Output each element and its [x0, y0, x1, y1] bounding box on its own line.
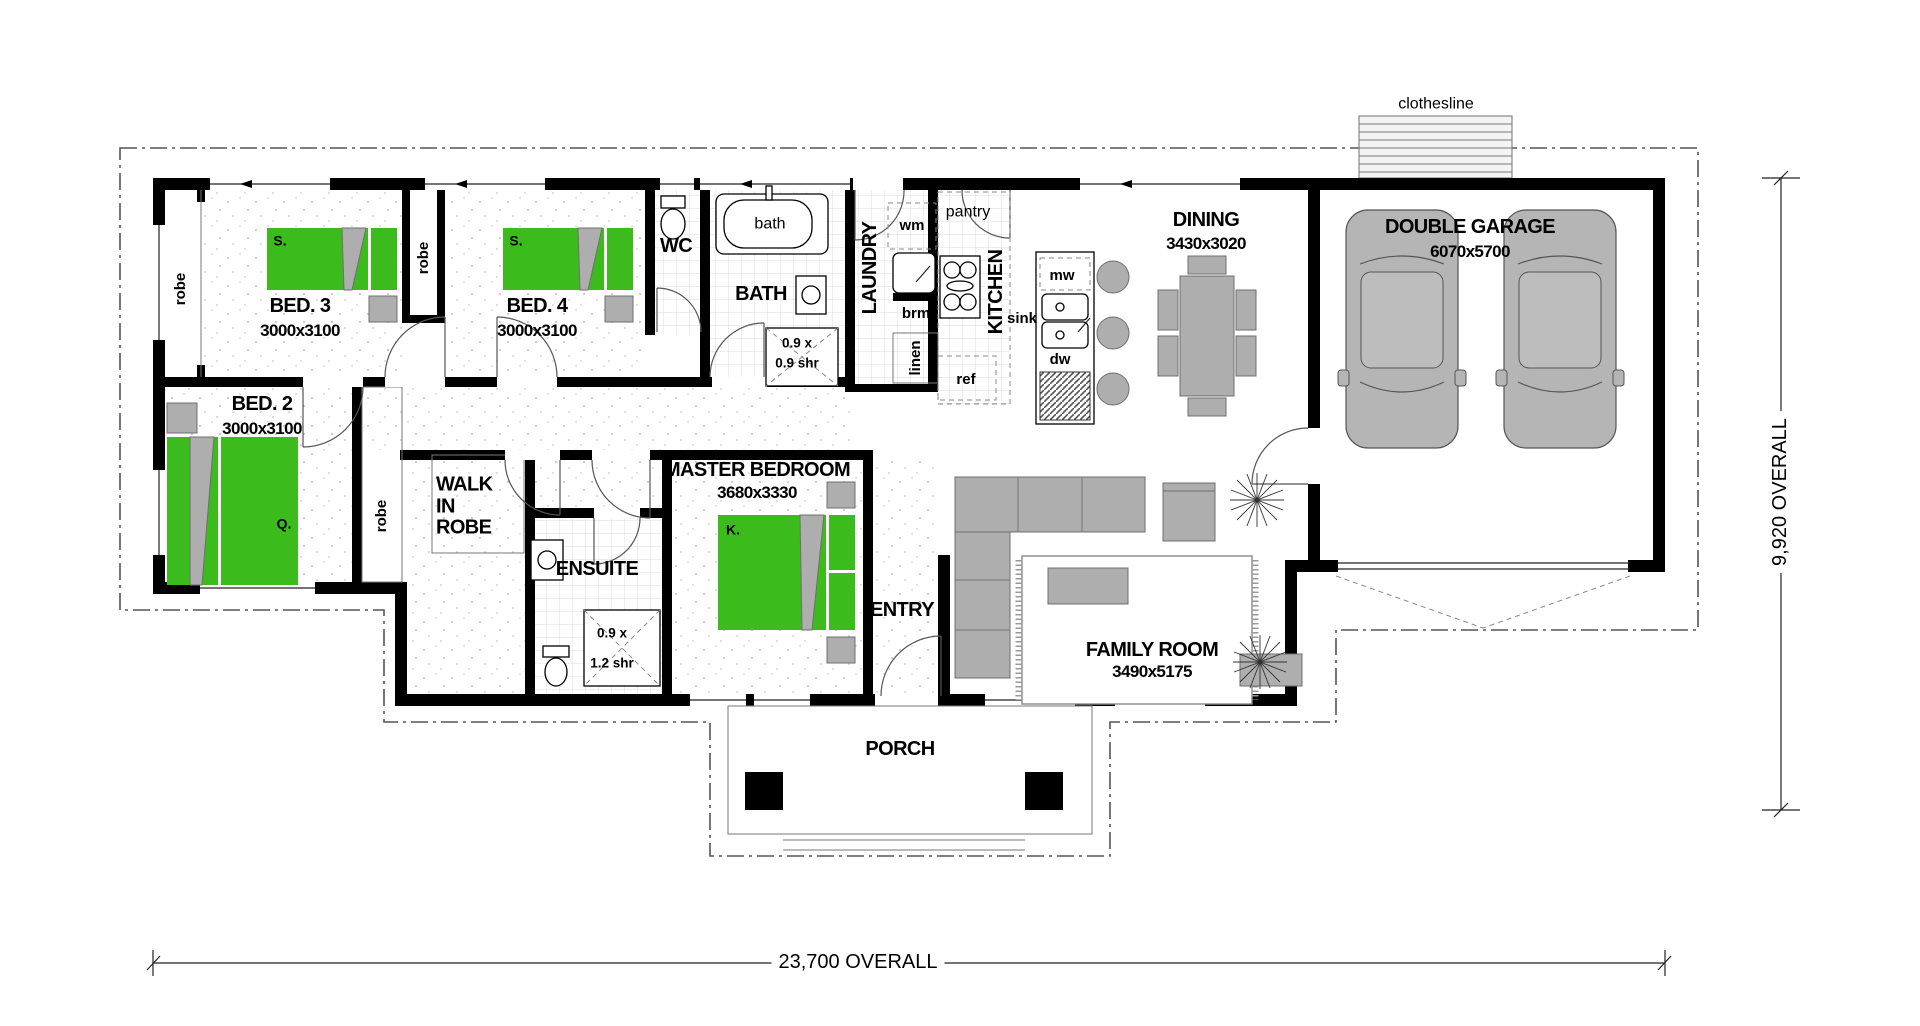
microwave-label: mw [1049, 268, 1074, 284]
pantry-label: pantry [946, 203, 990, 220]
robe-mid-label: robe [416, 242, 432, 275]
clothesline-unit [1359, 116, 1512, 178]
bath-shower-size-1: 0.9 x [782, 337, 812, 352]
porch-structure [728, 706, 1092, 850]
master-king-label: K. [726, 522, 740, 537]
floor-plan-drawing [0, 0, 1920, 1026]
ensuite-label: ENSUITE [556, 559, 638, 581]
kitchen-label: KITCHEN [986, 250, 1008, 335]
family-room-dims: 3490x5175 [1112, 663, 1192, 681]
bed3-dims: 3000x3100 [260, 322, 340, 340]
entry-label: ENTRY [870, 600, 934, 622]
ensuite-shower-size-2: 1.2 shr [590, 657, 634, 672]
bed4-label: BED. 4 [507, 296, 568, 318]
bath-shower-size-2: 0.9 shr [775, 357, 819, 372]
porch-label: PORCH [865, 739, 934, 761]
bath-tub-label: bath [754, 215, 785, 232]
overall-height-dimension: 9,920 OVERALL [1770, 411, 1792, 573]
bed2-queen-label: Q. [277, 516, 292, 531]
dishwasher-label: dw [1050, 352, 1071, 368]
clothesline-label: clothesline [1398, 95, 1474, 112]
garage-dims: 6070x5700 [1430, 243, 1510, 261]
bed3-single-label: S. [273, 233, 286, 248]
dining-dims: 3430x3020 [1166, 235, 1246, 253]
ensuite-shower-size-1: 0.9 x [597, 627, 627, 642]
family-room-label: FAMILY ROOM [1086, 640, 1218, 662]
master-bedroom-dims: 3680x3330 [717, 484, 797, 502]
wc-toilet [661, 196, 685, 239]
bath-label: BATH [735, 284, 787, 306]
dining-label: DINING [1173, 210, 1239, 232]
bed2-label: BED. 2 [232, 394, 293, 416]
bed3-label: BED. 3 [270, 296, 331, 318]
robe-bed2-label: robe [374, 500, 390, 533]
master-bedroom-label: MASTER BEDROOM [664, 460, 850, 482]
bed4-single-label: S. [509, 233, 522, 248]
broom-cupboard-label: brm [902, 306, 930, 322]
washing-machine-label: wm [899, 218, 924, 234]
bed4-dims: 3000x3100 [497, 322, 577, 340]
wc-label: WC [660, 236, 692, 258]
floor-plan-page: BED. 3 3000x3100 BED. 4 3000x3100 BED. 2… [0, 0, 1920, 1026]
dining-set [1158, 256, 1256, 416]
laundry-label: LAUNDRY [860, 222, 882, 315]
sink-label: sink [1007, 311, 1037, 327]
bed2-dims: 3000x3100 [222, 420, 302, 438]
linen-label: linen [908, 340, 924, 375]
overall-width-dimension: 23,700 OVERALL [772, 952, 945, 974]
walk-in-robe-label: WALK IN ROBE [436, 475, 512, 540]
robe-left-label: robe [173, 273, 189, 306]
garage-door [1336, 563, 1630, 628]
fridge-label: ref [956, 372, 975, 388]
garage-label: DOUBLE GARAGE [1385, 217, 1555, 239]
